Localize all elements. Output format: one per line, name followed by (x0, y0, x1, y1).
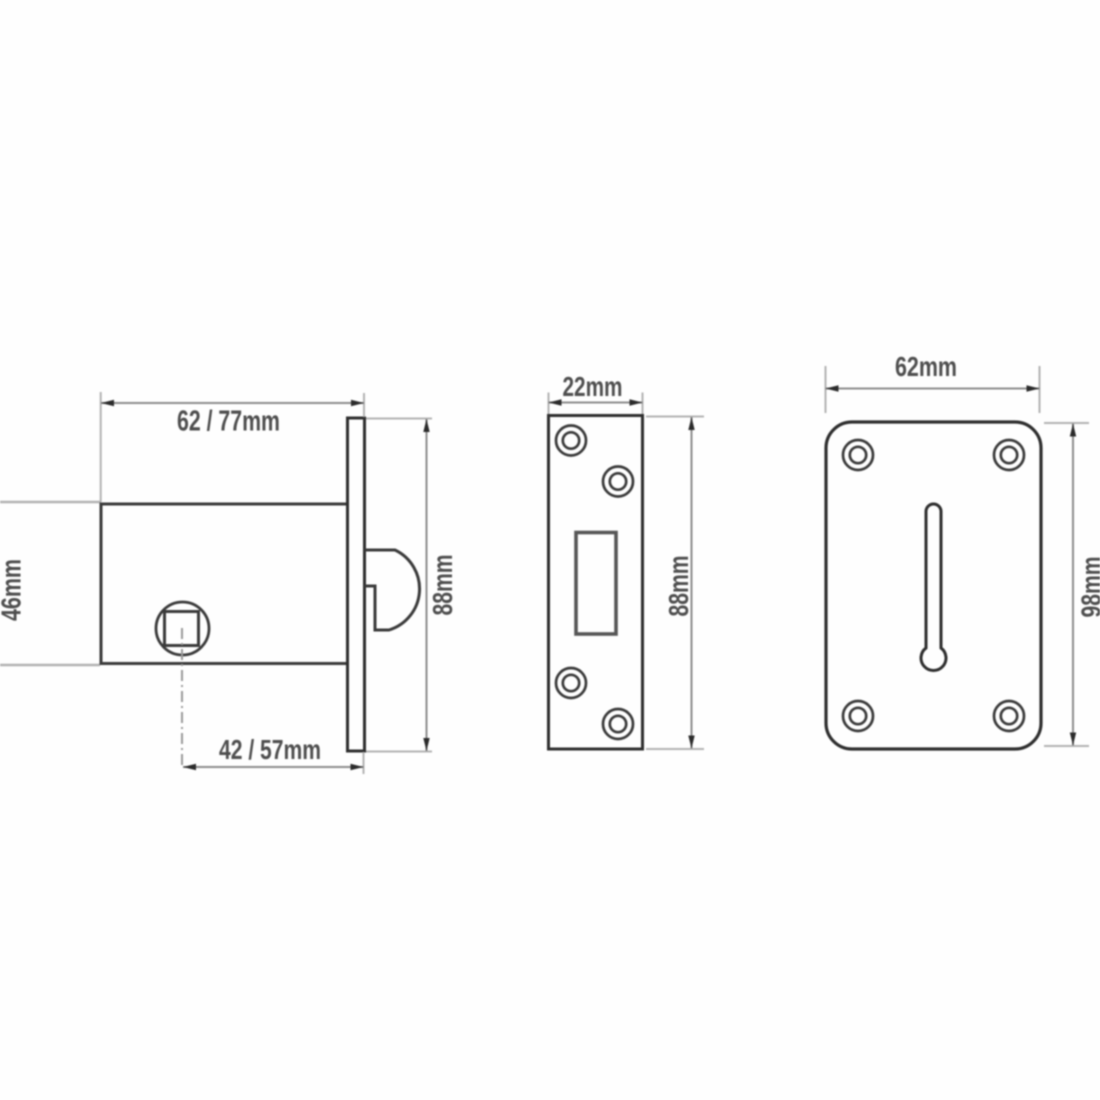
svg-text:46mm: 46mm (0, 559, 27, 621)
svg-text:42 / 57mm: 42 / 57mm (219, 734, 321, 765)
svg-text:88mm: 88mm (427, 555, 458, 616)
svg-text:22mm: 22mm (563, 371, 623, 402)
svg-text:88mm: 88mm (663, 556, 694, 617)
svg-text:62 / 77mm: 62 / 77mm (177, 406, 280, 438)
svg-text:98mm: 98mm (1076, 557, 1100, 618)
svg-text:62mm: 62mm (895, 351, 957, 382)
